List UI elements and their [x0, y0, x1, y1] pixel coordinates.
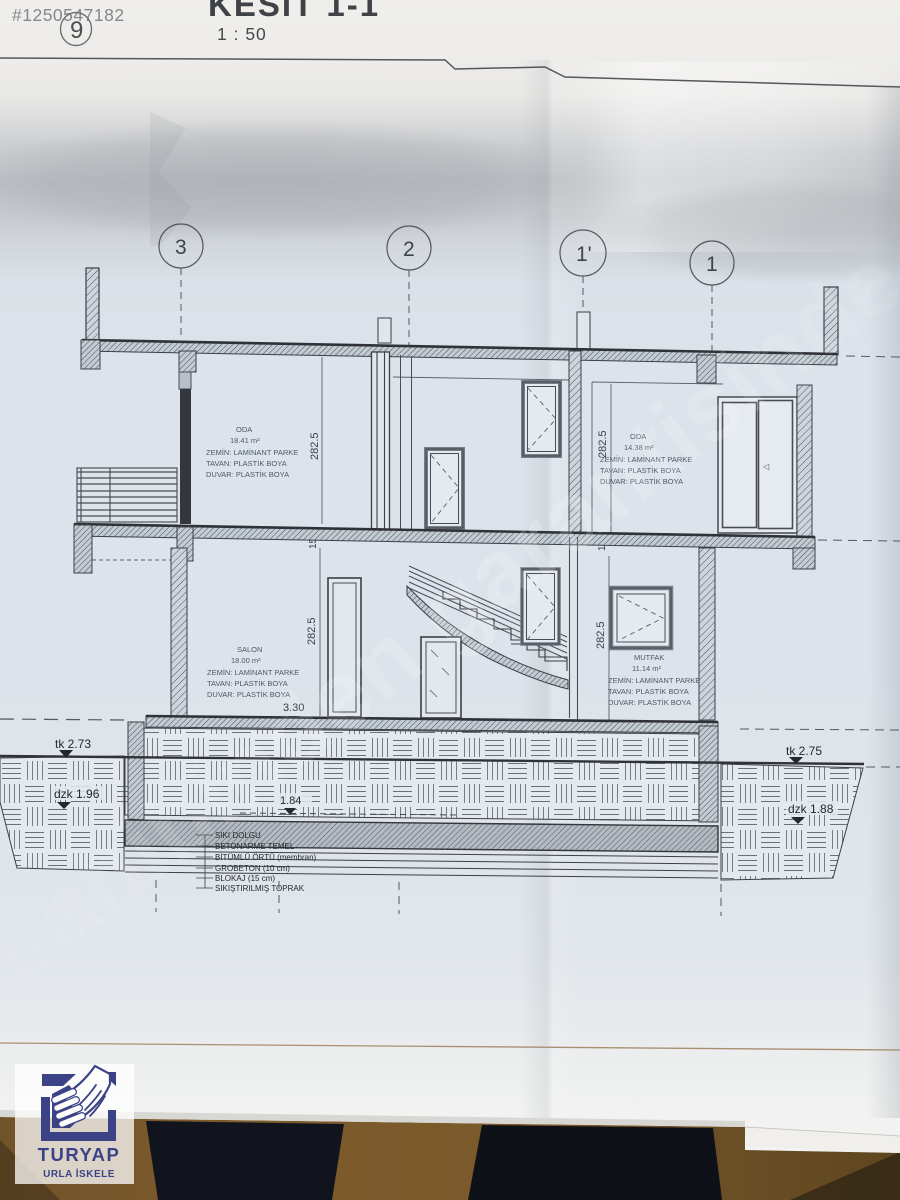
svg-text:DUVAR: PLASTİK BOYA: DUVAR: PLASTİK BOYA [206, 470, 289, 479]
svg-text:11.14 m²: 11.14 m² [632, 664, 662, 673]
svg-text:TAVAN: PLASTİK BOYA: TAVAN: PLASTİK BOYA [608, 687, 689, 696]
svg-text:tk 2.75: tk 2.75 [786, 744, 822, 758]
svg-text:282.5: 282.5 [306, 617, 318, 645]
svg-text:1 : 50: 1 : 50 [217, 24, 267, 44]
svg-text:BİTÜMLÜ ÖRTÜ (membran): BİTÜMLÜ ÖRTÜ (membran) [215, 853, 317, 862]
svg-text:ZEMİN: LAMİNANT PARKE: ZEMİN: LAMİNANT PARKE [608, 676, 700, 685]
svg-text:TURYAP: TURYAP [38, 1144, 121, 1165]
svg-text:MUTFAK: MUTFAK [634, 653, 664, 662]
svg-text:dzk 1.88: dzk 1.88 [788, 802, 834, 816]
svg-text:SIKIŞTIRILMIŞ TOPRAK: SIKIŞTIRILMIŞ TOPRAK [215, 884, 305, 893]
svg-text:282.5: 282.5 [595, 621, 607, 649]
svg-text:18.00 m²: 18.00 m² [231, 656, 261, 665]
svg-text:18.41 m²: 18.41 m² [230, 436, 260, 445]
svg-text:9: 9 [70, 17, 83, 44]
svg-text:SALON: SALON [237, 645, 262, 654]
svg-text:ZEMİN: LAMİNANT PARKE: ZEMİN: LAMİNANT PARKE [206, 448, 298, 457]
svg-text:282.5: 282.5 [309, 432, 321, 460]
svg-text:ODA: ODA [236, 425, 252, 434]
svg-text:BLOKAJ (15 cm): BLOKAJ (15 cm) [215, 874, 275, 883]
svg-text:3: 3 [175, 236, 187, 259]
svg-text:TAVAN: PLASTİK BOYA: TAVAN: PLASTİK BOYA [206, 459, 287, 468]
svg-text:tk 2.73: tk 2.73 [55, 737, 91, 751]
svg-text:DUVAR: PLASTİK BOYA: DUVAR: PLASTİK BOYA [608, 698, 691, 707]
svg-text:1': 1' [576, 243, 592, 266]
svg-text:◁: ◁ [763, 462, 770, 471]
svg-text:URLA İSKELE: URLA İSKELE [43, 1167, 115, 1180]
svg-text:GROBETON (10 cm): GROBETON (10 cm) [215, 864, 290, 873]
svg-text:dzk 1.96: dzk 1.96 [54, 787, 100, 801]
svg-text:KESIT 1-1: KESIT 1-1 [208, 0, 380, 23]
svg-text:2: 2 [403, 238, 415, 261]
svg-text:1: 1 [706, 253, 718, 276]
